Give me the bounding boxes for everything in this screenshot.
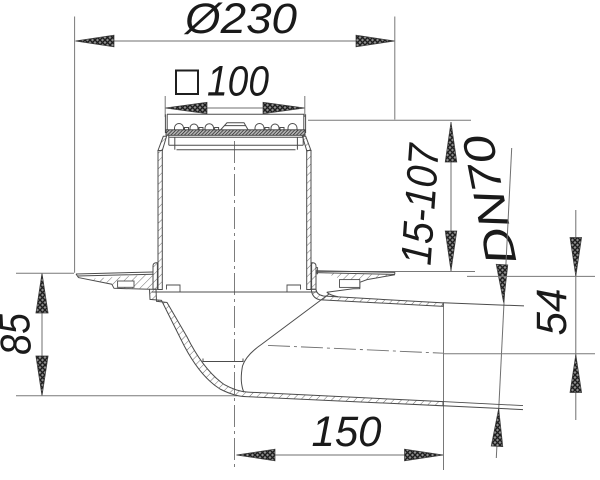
svg-text:15-107: 15-107 xyxy=(393,141,449,267)
svg-text:85: 85 xyxy=(0,311,41,356)
svg-text:54: 54 xyxy=(528,289,576,336)
svg-text:Ø230: Ø230 xyxy=(183,0,297,43)
svg-text:100: 100 xyxy=(207,58,269,106)
svg-text:150: 150 xyxy=(312,408,382,456)
